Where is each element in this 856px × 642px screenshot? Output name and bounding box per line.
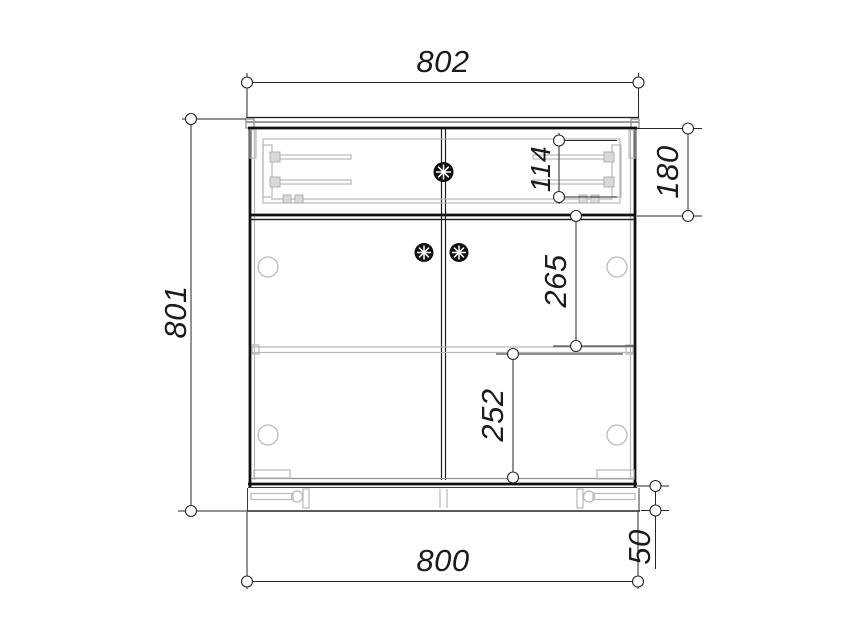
right-foot-bar [593, 494, 635, 500]
dim-shelf-to-door-bottom-label: 252 [475, 388, 510, 442]
dimension-door-top-to-shelf: 265 [538, 211, 634, 352]
dim-door-top-to-shelf-label: 265 [538, 254, 573, 308]
cabinet-technical-drawing: 802 801 114 180 265 [0, 0, 856, 642]
left-foot-block [303, 489, 309, 508]
hinge-right-top [607, 257, 627, 277]
right-door-knob [450, 243, 469, 262]
hinge-left-top [258, 257, 278, 277]
dimension-bottom-width: 800 [242, 512, 644, 589]
bottom-lug-4 [591, 195, 599, 203]
left-slide-lug-1 [270, 152, 280, 162]
hinge-right-bottom [607, 425, 627, 445]
right-slide-lug-2 [604, 177, 614, 187]
dimension-drawer-rail-pitch: 114 [525, 133, 617, 204]
right-door-bottom-bracket [597, 470, 634, 479]
adjustable-feet [251, 470, 635, 508]
dim-drawer-rail-pitch-label: 114 [525, 146, 556, 192]
left-slide-lug-2 [270, 177, 280, 187]
drawing-canvas: 802 801 114 180 265 [0, 0, 856, 642]
dimension-overall-height: 801 [158, 114, 247, 517]
hinge-left-bottom [258, 425, 278, 445]
dimension-drawer-front-height: 180 [637, 123, 702, 222]
bottom-lug-3 [579, 195, 587, 203]
bottom-lug-1 [283, 195, 291, 203]
dim-overall-height-label: 801 [158, 285, 193, 338]
dim-bottom-width-label: 800 [416, 543, 469, 578]
left-rail-2 [280, 180, 351, 184]
dimension-top-width: 802 [242, 44, 645, 117]
left-foot-bar [251, 494, 293, 500]
left-rail-1 [280, 155, 351, 159]
right-slide-lug-1 [604, 152, 614, 162]
left-door-knob [415, 243, 434, 262]
left-door-bottom-bracket [254, 470, 290, 478]
dim-plinth-height-label: 50 [622, 529, 657, 564]
dimension-shelf-to-door-bottom: 252 [475, 349, 623, 484]
right-foot-block [577, 489, 583, 508]
dim-top-width-label: 802 [416, 44, 469, 79]
drawer-knob [434, 162, 454, 182]
bottom-lug-2 [295, 195, 303, 203]
dim-drawer-front-height-label: 180 [650, 145, 685, 198]
